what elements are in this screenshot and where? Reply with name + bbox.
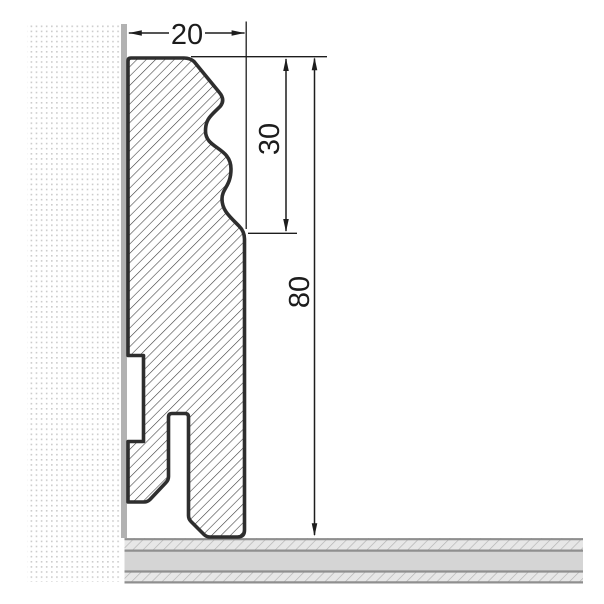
arrow-left-icon (129, 30, 142, 36)
floor-section (125, 538, 584, 584)
width-dimension-label: 20 (171, 19, 203, 51)
dimension-total-height: 80 (284, 57, 317, 536)
skirting-profile (128, 58, 245, 537)
wall-surface-strip (121, 24, 127, 538)
total-height-dimension-label: 80 (284, 276, 316, 308)
technical-drawing-canvas: 20 30 80 (0, 0, 604, 604)
floor-mid-band (125, 552, 584, 571)
skirting-profile-drawing: 20 30 80 (0, 0, 604, 604)
arrow-up-icon (283, 58, 289, 71)
arrow-down-icon (312, 523, 318, 536)
wall-section (27, 24, 127, 582)
arrow-right-icon (232, 30, 245, 36)
upper-height-dimension-label: 30 (254, 123, 286, 155)
skirting-profile-outline (128, 58, 245, 537)
wall-stipple-texture (27, 24, 121, 582)
arrow-up-icon (312, 57, 318, 70)
arrow-down-icon (283, 219, 289, 232)
